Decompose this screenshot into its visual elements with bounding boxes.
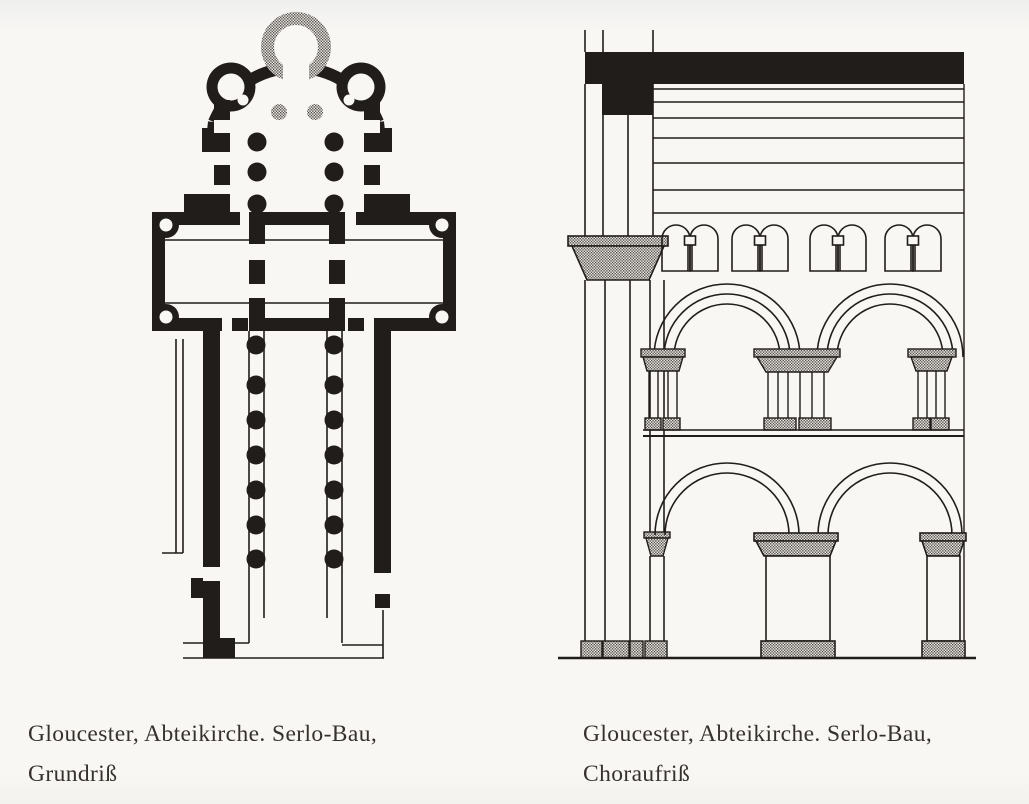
plan-nave bbox=[162, 331, 391, 658]
floor-plan-figure bbox=[152, 12, 456, 658]
elevation-gallery bbox=[641, 284, 964, 436]
elevation-arcade bbox=[558, 463, 976, 658]
elevation-clerestory bbox=[662, 225, 941, 271]
caption-choraufriss: Gloucester, Abteikirche. Serlo-Bau, Chor… bbox=[583, 714, 932, 794]
clerestory-window-group bbox=[810, 225, 866, 271]
caption-line: Grundriß bbox=[28, 761, 117, 787]
elevation-figure bbox=[558, 30, 976, 658]
clerestory-window-group bbox=[662, 225, 718, 271]
clerestory-window-group bbox=[885, 225, 941, 271]
caption-line: Gloucester, Abteikirche. Serlo-Bau, bbox=[28, 721, 377, 747]
caption-grundriss: Gloucester, Abteikirche. Serlo-Bau, Grun… bbox=[28, 714, 377, 794]
plan-choir bbox=[184, 100, 410, 212]
elevation-roof-band bbox=[585, 52, 964, 115]
caption-line: Choraufriß bbox=[583, 761, 690, 787]
clerestory-window-group bbox=[732, 225, 788, 271]
plan-columns bbox=[247, 104, 344, 569]
caption-line: Gloucester, Abteikirche. Serlo-Bau, bbox=[583, 721, 932, 747]
plan-transept bbox=[152, 212, 456, 331]
figures-canvas bbox=[0, 0, 1029, 694]
